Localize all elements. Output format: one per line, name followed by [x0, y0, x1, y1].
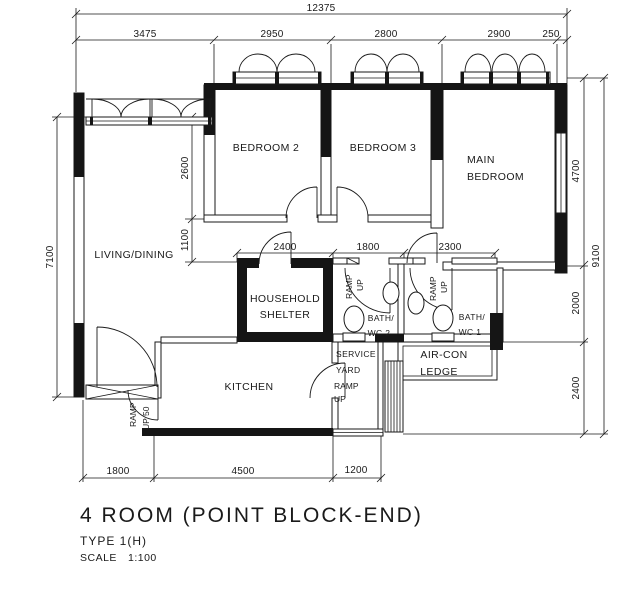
kitchen-top-wall: [161, 337, 237, 343]
aircon-ledge-label-1: AIR-CON: [420, 349, 467, 361]
main-bedroom-window: [461, 54, 550, 84]
service-yard-ramp-label-2: UP: [334, 394, 346, 404]
bedroom-bottom-wall-c: [368, 215, 431, 222]
dim-right-4700: 4700: [571, 159, 582, 182]
title-block: 4 ROOM (POINT BLOCK-END) TYPE 1(H) SCALE…: [80, 504, 423, 564]
dim-top-5: 250: [542, 29, 560, 40]
hatch-strip: [385, 361, 403, 432]
living-dining-label: LIVING/DINING: [94, 249, 173, 261]
bedroom-bottom-wall-a: [204, 215, 287, 222]
dim-right-2400: 2400: [571, 376, 582, 399]
dim-top-1: 3475: [133, 29, 156, 40]
service-yard-right-wall: [378, 342, 383, 430]
kitchen-label: KITCHEN: [225, 381, 274, 393]
dim-interior-2600: 2600: [180, 156, 191, 179]
dim-top-2: 2950: [260, 29, 283, 40]
pier-bedroom2-left: [204, 85, 215, 135]
bath1-toilet: [432, 305, 454, 341]
dim-mid-2300: 2300: [438, 242, 461, 253]
dim-bottom-1800: 1800: [106, 466, 129, 477]
pier-left-bottom: [74, 323, 84, 397]
plan-scale-value: 1:100: [128, 552, 157, 564]
plan-title: 4 ROOM (POINT BLOCK-END): [80, 504, 423, 527]
floor-plan-drawing: 12375 3475 2950 2800 2900 250 7100 2600 …: [0, 0, 640, 614]
bath1-label-1: BATH/: [459, 312, 486, 322]
bath2-label-1: BATH/: [368, 313, 395, 323]
pier-bath1-right: [490, 313, 503, 350]
dim-mid-2400: 2400: [273, 242, 296, 253]
dim-top-3: 2800: [374, 29, 397, 40]
bedroom2-label: BEDROOM 2: [233, 142, 300, 154]
dim-mid-1800: 1800: [356, 242, 379, 253]
aircon-ledge-label-2: LEDGE: [420, 366, 458, 378]
dim-bottom-1200: 1200: [344, 465, 367, 476]
pier-right-top: [555, 85, 567, 135]
bath2-basin: [383, 282, 399, 304]
bath2-toilet: [343, 306, 365, 341]
bath-ramp-strips: [347, 258, 425, 264]
dim-right-2000: 2000: [571, 291, 582, 314]
bath1-ramp-label-2: UP: [439, 281, 449, 293]
pier-right-mid: [555, 212, 567, 273]
bath2-ramp-label-2: UP: [355, 279, 365, 291]
dim-interior-1100: 1100: [180, 229, 191, 252]
pier-bedroom3-main: [431, 85, 443, 160]
living-bay-window: [86, 99, 212, 125]
bedroom3-door: [337, 187, 368, 218]
bedroom3-label: BEDROOM 3: [350, 142, 417, 154]
service-yard-label-1: SERVICE: [336, 349, 376, 359]
bedroom3-window: [351, 54, 423, 84]
bath1-label-2: WC 1: [459, 327, 482, 337]
bath-top-wall-b: [389, 258, 413, 264]
bath2-ramp-label-1: RAMP: [344, 274, 354, 299]
dim-top-4: 2900: [487, 29, 510, 40]
bath1-basin: [408, 292, 424, 314]
plan-scale-label: SCALE: [80, 552, 117, 564]
bath-top-wall-a: [333, 258, 347, 264]
main-bedroom-label-1: MAIN: [467, 154, 495, 166]
dim-right-total: 9100: [591, 244, 602, 267]
entrance-ramp-label-2: UP 50: [141, 406, 151, 430]
plan-type: TYPE 1(H): [80, 534, 147, 548]
bedroom2-window: [233, 54, 321, 84]
kitchen-bottom-wall: [142, 428, 333, 436]
bath-party-wall: [398, 264, 404, 334]
entrance-ramp-label-1: RAMP: [128, 402, 138, 427]
dim-bottom-4500: 4500: [231, 466, 254, 477]
service-yard-label-2: YARD: [336, 365, 361, 375]
bedroom2-door: [286, 187, 317, 218]
pier-bedroom23: [321, 85, 331, 157]
main-bedroom-side-window: [556, 133, 566, 213]
bath1-ramp-label-1: RAMP: [428, 276, 438, 301]
household-shelter-label-1: HOUSEHOLD: [250, 293, 320, 305]
entrance-threshold-ramp: [86, 385, 158, 399]
dim-top-total: 12375: [307, 3, 336, 14]
main-bedroom-label-2: BEDROOM: [467, 171, 524, 183]
dim-left-total: 7100: [45, 245, 56, 268]
bath2-label-2: WC 2: [368, 328, 391, 338]
household-shelter-label-2: SHELTER: [260, 309, 310, 321]
service-yard-ramp-label-1: RAMP: [334, 381, 359, 391]
bath-top-wall-c: [452, 258, 497, 264]
pier-left-top: [74, 93, 84, 177]
bedroom-bottom-wall-b: [318, 215, 337, 222]
